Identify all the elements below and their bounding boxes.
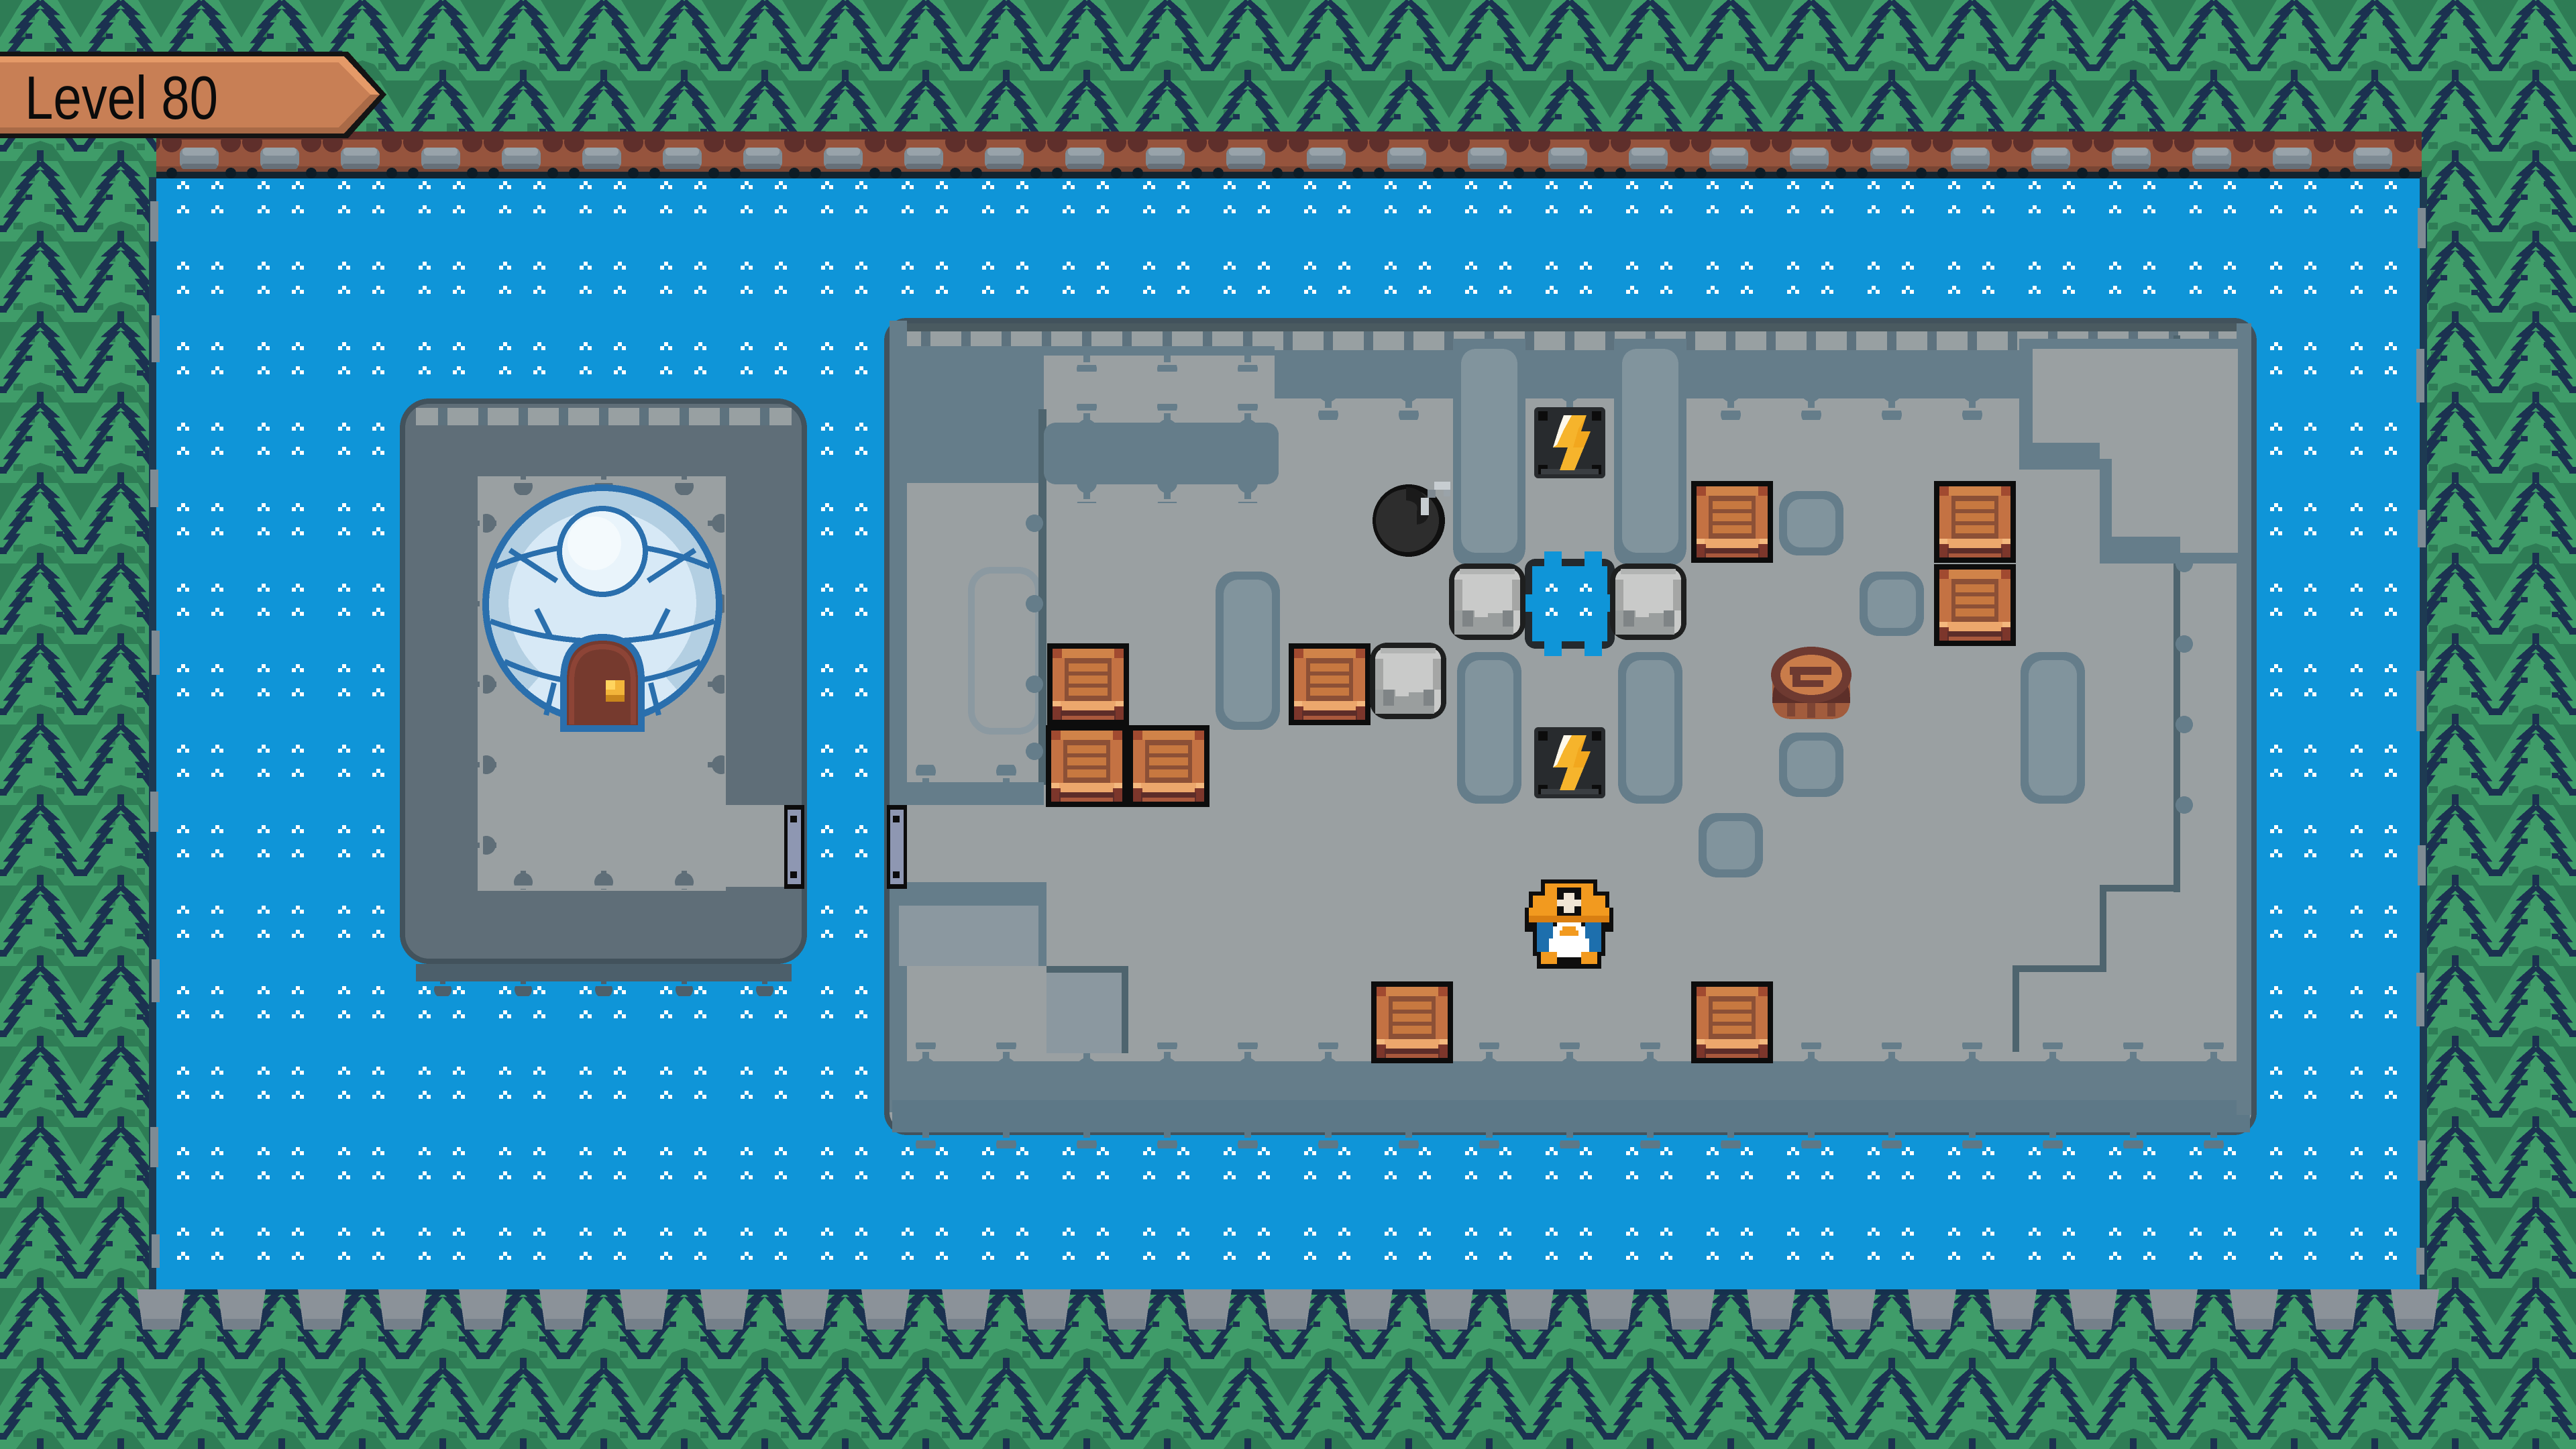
svg-text:Level 80: Level 80 xyxy=(25,64,218,132)
